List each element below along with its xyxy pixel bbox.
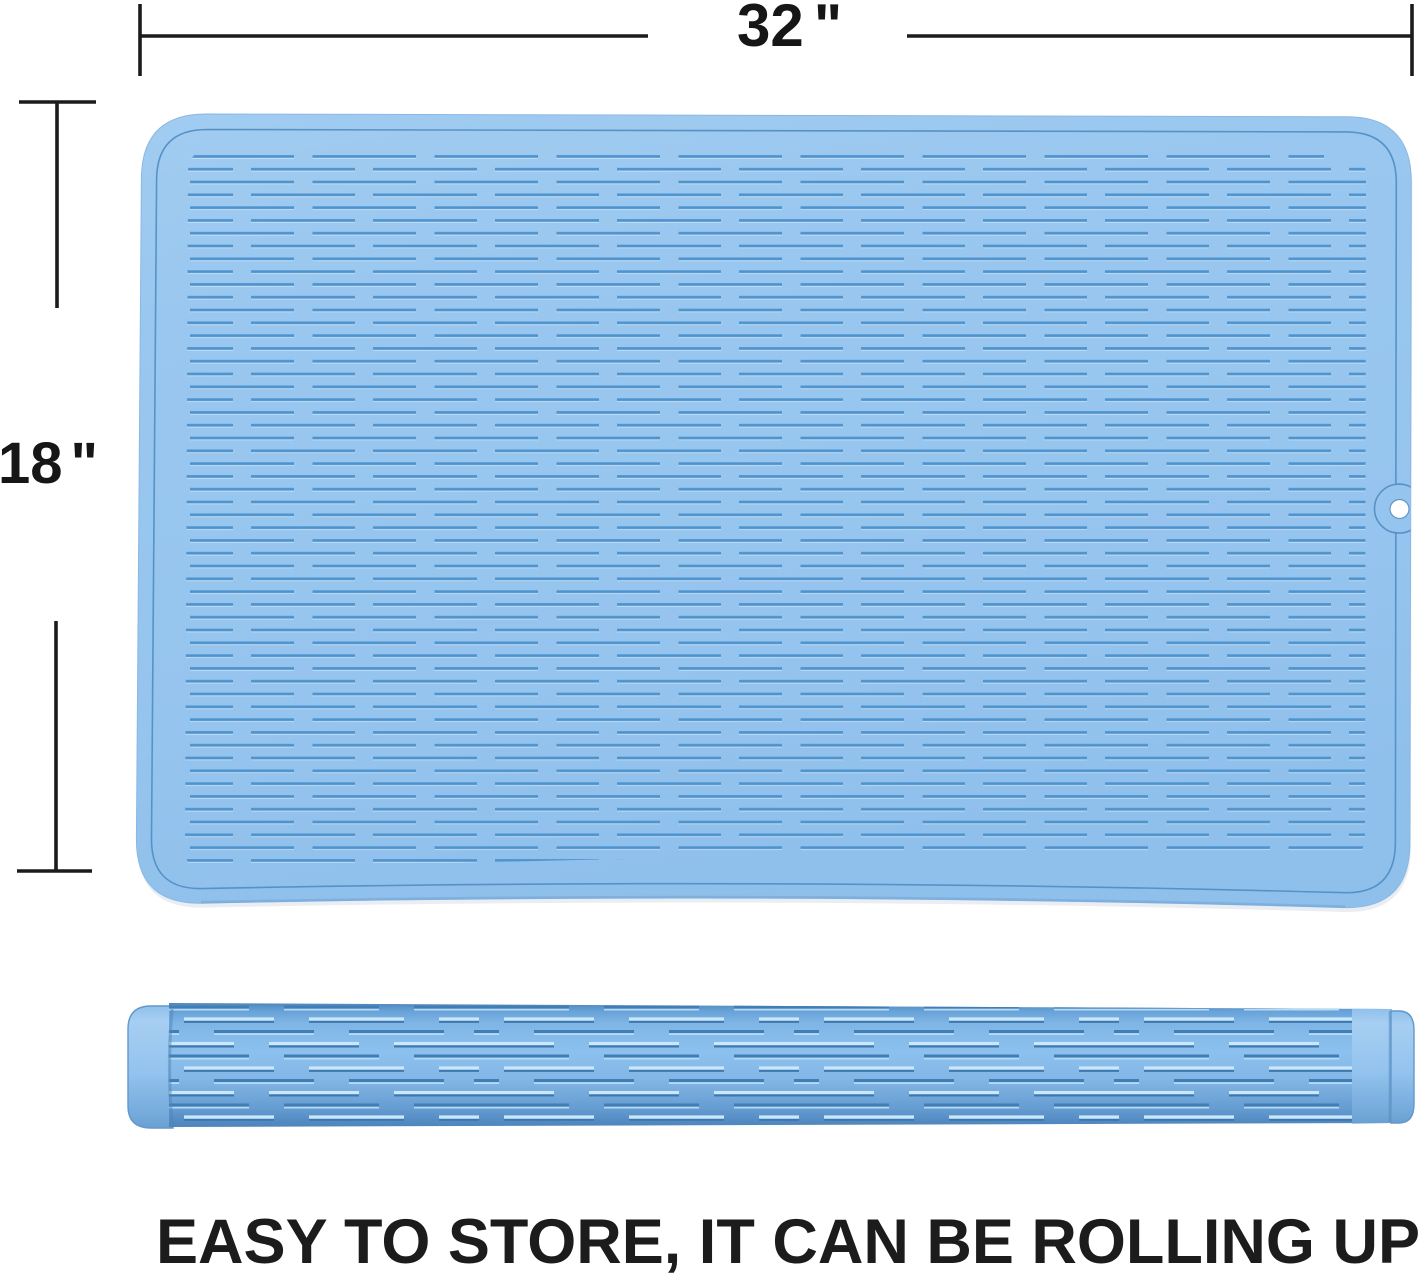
svg-text:18": 18" <box>0 431 98 496</box>
svg-text:32": 32" <box>737 0 842 59</box>
svg-text:EASY TO STORE, IT CAN BE ROLLI: EASY TO STORE, IT CAN BE ROLLING UP <box>156 1207 1420 1276</box>
